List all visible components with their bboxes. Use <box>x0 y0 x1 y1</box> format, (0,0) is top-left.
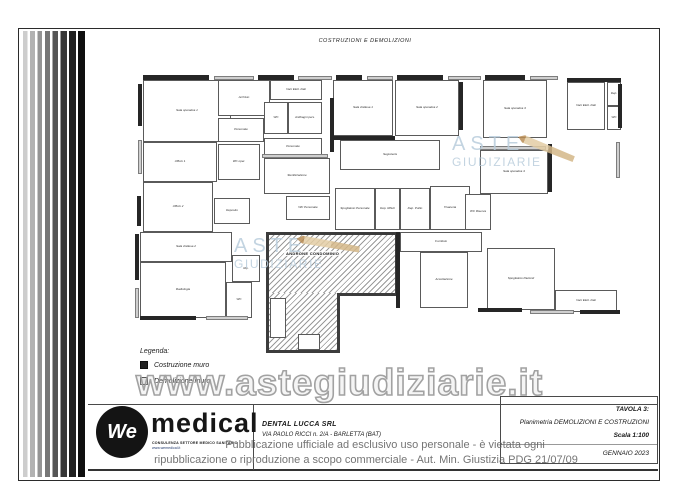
room-label: Accettazione <box>435 278 452 281</box>
room-label: Dep. <box>611 92 617 95</box>
room-label: Ufficio 2 <box>173 205 184 208</box>
room-wc: WC <box>226 282 252 318</box>
room-label: Spogliatoio Personale <box>340 207 369 210</box>
room-label: Sala operativa 1 <box>176 109 198 112</box>
construction-wall <box>485 75 525 80</box>
room-label: Dep. Pulito <box>408 207 423 210</box>
room-label: Personale <box>234 128 248 131</box>
room-wc: WC <box>264 102 288 134</box>
scanned-floor-plan-sheet: COSTRUZIONI E DEMOLIZIONI ANDRONE CONDOM… <box>0 0 700 495</box>
construction-wall <box>580 310 620 314</box>
room-archivio: Archivio <box>218 80 270 116</box>
construction-wall <box>567 78 621 82</box>
room-dep-rifiuti: Dep. Rifiuti <box>375 188 400 230</box>
construction-wall <box>138 84 142 126</box>
room-spogliatoio-pazienti: Spogliatoio Pazienti <box>487 248 555 310</box>
construction-wall <box>137 196 141 226</box>
wemedical-logo-icon: We <box>96 406 148 458</box>
room-label: Sala d'attesa 1 <box>353 106 373 109</box>
demolition-wall <box>206 316 248 320</box>
construction-wall <box>258 75 294 80</box>
astegiudiziarie-watermark: www.astegiudiziarie.it <box>136 362 543 404</box>
construction-wall <box>336 75 362 80</box>
legal-notice-line2: ripubblicazione o riproduzione a scopo c… <box>126 454 606 466</box>
construction-wall <box>478 308 522 312</box>
room-label: Sterilizzazione <box>287 174 306 177</box>
demolition-wall <box>298 76 332 80</box>
room-label: WC <box>274 116 279 119</box>
room-label: WC <box>237 298 242 301</box>
tavola-number: TAVOLA 3: <box>616 406 649 413</box>
room-label: Sala operativa 4 <box>503 170 525 173</box>
company-address: VIA PAOLO RICCI n. 2/A - BARLETTA (BAT) <box>262 432 381 438</box>
room-label: Segreteria <box>383 153 397 156</box>
demolition-wall <box>214 76 254 80</box>
construction-wall <box>618 84 622 128</box>
wemedical-brand: medical <box>151 408 259 439</box>
demolition-wall <box>262 154 328 158</box>
demolition-wall <box>616 142 620 178</box>
room-personale: Personale <box>218 118 264 142</box>
room-sterilizzazione: Sterilizzazione <box>264 158 330 194</box>
room-vani-elett-dati: Vani Elett. Dati <box>555 290 617 312</box>
room-label: Personale <box>286 145 300 148</box>
construction-wall <box>459 82 463 130</box>
construction-wall <box>135 234 139 280</box>
drawing-scale: Scala 1:100 <box>614 432 649 439</box>
company-name: DENTAL LUCCA SRL <box>262 421 337 428</box>
room-wc-personale: WC Personale <box>286 196 330 220</box>
room-ufficio-1: Ufficio 1 <box>143 142 217 182</box>
room-label: Tisaneria <box>444 206 456 209</box>
room-sala-d-attesa-1: Sala d'attesa 1 <box>333 80 393 136</box>
drawing-subject: Planimetria DEMOLIZIONI E COSTRUZIONI <box>520 419 649 426</box>
room-label: Antibagni pers. <box>295 116 315 119</box>
room-deposito: Deposito <box>214 198 250 224</box>
room-label: Sala d'attesa 2 <box>176 245 196 248</box>
aste-watermark-line2: GIUDIZIARIE <box>452 156 542 168</box>
room-dep-pulito: Dep. Pulito <box>400 188 430 230</box>
construction-wall <box>330 98 334 152</box>
demolition-wall <box>135 288 139 318</box>
room-vani-elett-dati: Vani Elett. Dati <box>567 82 605 130</box>
room-label: Vani Elett. Dati <box>286 88 306 91</box>
title-band-bottom-rule <box>88 469 658 471</box>
construction-wall <box>143 75 209 80</box>
room-ufficio-2: Ufficio 2 <box>143 182 213 232</box>
room-sala-d-attesa-2: Sala d'attesa 2 <box>140 232 232 262</box>
drawing-date: GENNAIO 2023 <box>603 450 649 457</box>
room-label: Radiologia <box>176 288 190 291</box>
demolition-wall <box>530 310 574 314</box>
opening <box>298 334 320 350</box>
room-corridoio: Corridoio <box>400 232 482 252</box>
construction-wall <box>140 316 196 320</box>
room-label: Vani Elett. Dati <box>576 299 596 302</box>
room-label: WC <box>612 116 617 119</box>
room-label: Deposito <box>226 209 238 212</box>
legend-title: Legenda: <box>140 348 210 355</box>
room-label: Ufficio 1 <box>175 160 186 163</box>
aste-watermark-line2: GIUDIZIARIE <box>234 258 324 270</box>
room-spogliatoio-personale: Spogliatoio Personale <box>335 188 375 230</box>
room-wc-oper-: WC oper. <box>218 144 260 180</box>
room-antibagni-pers-: Antibagni pers. <box>288 102 322 134</box>
room-sala-operativa-2: Sala operativa 2 <box>395 80 459 136</box>
room-label: Archivio <box>239 96 250 99</box>
room-label: WC Personale <box>298 206 317 209</box>
room-sala-operativa-3: Sala operativa 3 <box>483 80 547 138</box>
construction-wall <box>397 75 443 80</box>
demolition-wall <box>367 76 393 80</box>
legal-notice-line1: Pubblicazione ufficiale ad esclusivo uso… <box>150 439 620 451</box>
demolition-wall <box>530 76 558 80</box>
construction-wall <box>396 232 400 308</box>
room-label: Sala operativa 3 <box>504 107 526 110</box>
wemedical-logo-mark: We <box>107 421 137 444</box>
room-label: Spogliatoio Pazienti <box>508 277 534 280</box>
room-label: Corridoio <box>435 240 447 243</box>
demolition-wall <box>138 140 142 174</box>
construction-wall <box>333 136 395 140</box>
room-label: Vani Elett. Dati <box>576 104 596 107</box>
room-tisaneria: Tisaneria <box>430 186 470 230</box>
room-label: Dep. Rifiuti <box>380 207 395 210</box>
room-accettazione: Accettazione <box>420 252 468 308</box>
room-segreteria: Segreteria <box>340 140 440 170</box>
room-label: WC oper. <box>233 160 246 163</box>
room-label: WC Riserva <box>470 210 486 213</box>
room-label: Sala operativa 2 <box>416 106 438 109</box>
opening <box>270 298 286 338</box>
room-wc-riserva: WC Riserva <box>465 194 491 230</box>
demolition-wall <box>448 76 481 80</box>
room-vani-elett-dati: Vani Elett. Dati <box>270 80 322 100</box>
room-radiologia: Radiologia <box>140 262 226 318</box>
